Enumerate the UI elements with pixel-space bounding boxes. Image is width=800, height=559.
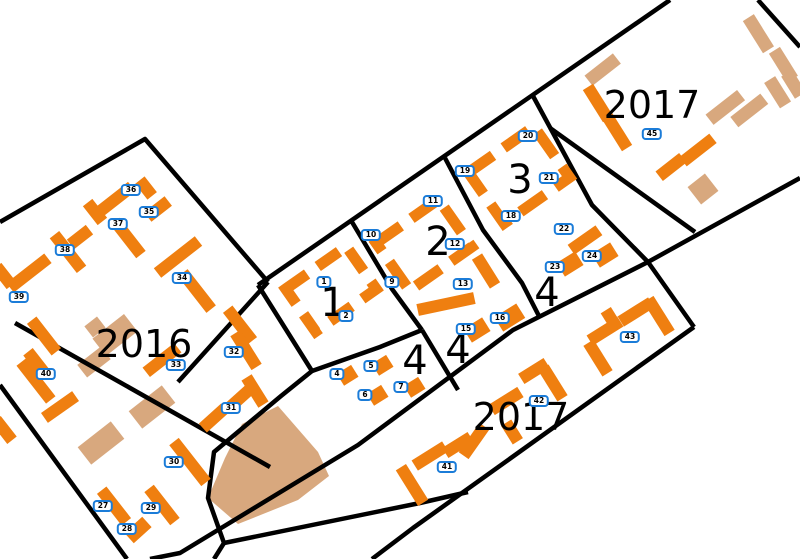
plot-number-badge[interactable]: 28 [117, 523, 137, 535]
block-year-label: 2016 [96, 325, 193, 363]
plot-number-badge[interactable]: 35 [139, 206, 159, 218]
site-plan-map: 1245679101112131516181920212223242728293… [0, 0, 800, 559]
plot-number-badge[interactable]: 7 [393, 381, 408, 393]
plot-number-badge[interactable]: 2 [338, 310, 353, 322]
plot-number-badge[interactable]: 31 [221, 402, 241, 414]
plot-number-badge[interactable]: 36 [121, 184, 141, 196]
plot-number-badge[interactable]: 23 [545, 261, 565, 273]
plot-number-badge[interactable]: 33 [166, 359, 186, 371]
block-year-label: 2017 [604, 86, 701, 124]
block-year-label: 3 [507, 160, 532, 200]
plot-number-badge[interactable]: 37 [108, 218, 128, 230]
plot-number-badge[interactable]: 10 [361, 229, 381, 241]
plot-number-badge[interactable]: 29 [141, 502, 161, 514]
plot-number-badge[interactable]: 15 [456, 323, 476, 335]
plot-number-badge[interactable]: 6 [357, 389, 372, 401]
plot-number-badge[interactable]: 38 [55, 244, 75, 256]
plot-number-badge[interactable]: 13 [453, 278, 473, 290]
block-year-label: 4 [534, 273, 559, 313]
plot-number-badge[interactable]: 16 [490, 312, 510, 324]
plot-number-badge[interactable]: 41 [437, 461, 457, 473]
plot-number-badge[interactable]: 1 [316, 276, 331, 288]
plot-number-badge[interactable]: 12 [445, 238, 465, 250]
plot-number-badge[interactable]: 32 [224, 346, 244, 358]
plot-number-badge[interactable]: 20 [518, 130, 538, 142]
plot-number-badge[interactable]: 42 [529, 395, 549, 407]
plot-number-badge[interactable]: 30 [164, 456, 184, 468]
plot-number-badge[interactable]: 24 [582, 250, 602, 262]
block-year-label: 4 [402, 341, 427, 381]
plot-number-badge[interactable]: 19 [455, 165, 475, 177]
plot-number-badge[interactable]: 11 [423, 195, 443, 207]
planned-building-shapes [0, 84, 717, 544]
plot-number-badge[interactable]: 27 [93, 500, 113, 512]
plot-number-badge[interactable]: 5 [363, 360, 378, 372]
plot-number-badge[interactable]: 4 [329, 368, 344, 380]
plot-number-badge[interactable]: 40 [36, 368, 56, 380]
plot-number-badge[interactable]: 9 [384, 276, 399, 288]
plot-number-badge[interactable]: 43 [620, 331, 640, 343]
block-year-label: 2017 [473, 398, 570, 436]
plot-number-badge[interactable]: 21 [539, 172, 559, 184]
plot-number-badge[interactable]: 22 [554, 223, 574, 235]
plot-number-badge[interactable]: 39 [9, 291, 29, 303]
plot-number-badge[interactable]: 18 [501, 210, 521, 222]
plot-number-badge[interactable]: 34 [172, 272, 192, 284]
block-year-label: 4 [445, 330, 470, 370]
plot-number-badge[interactable]: 45 [642, 128, 662, 140]
